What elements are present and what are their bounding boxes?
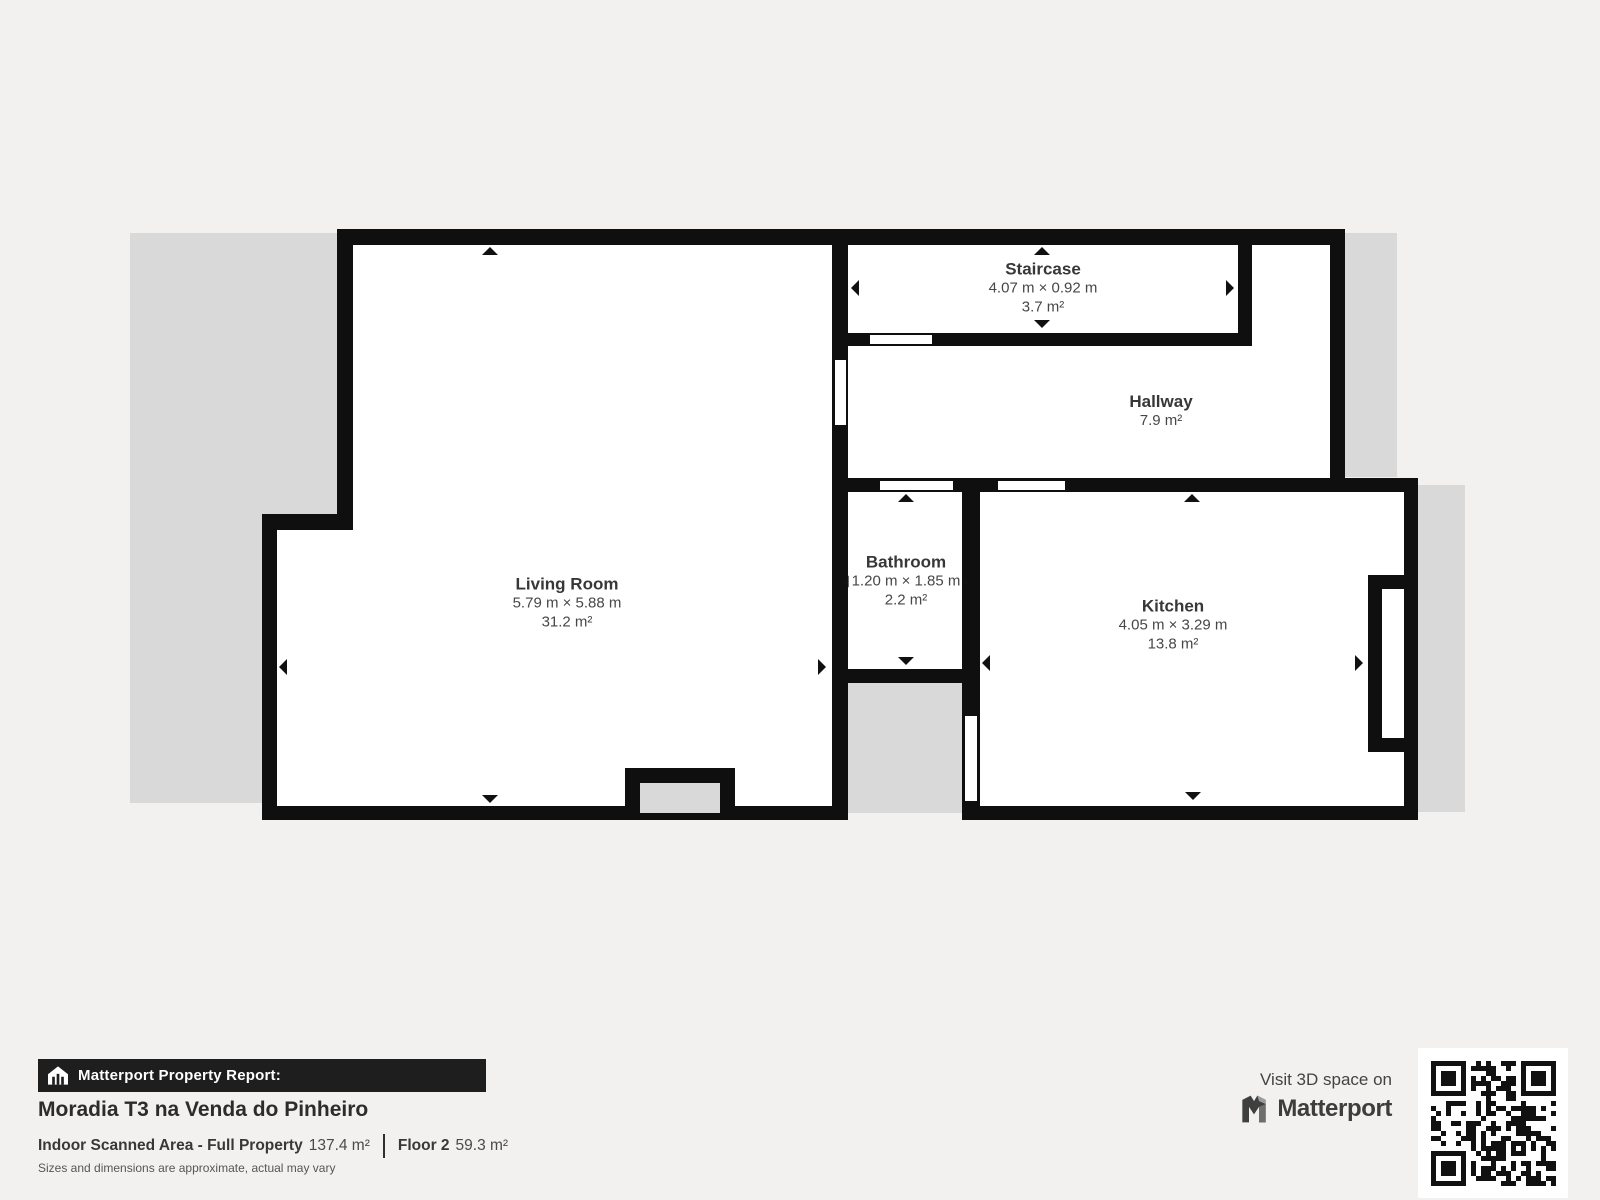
room-fill-living-room — [277, 530, 357, 806]
wall — [262, 806, 848, 820]
room-label-kitchen: Kitchen 4.05 m × 3.29 m 13.8 m² — [1119, 597, 1228, 654]
measure-arrow-left-icon — [279, 659, 287, 675]
matterport-logo: Matterport — [1150, 1094, 1392, 1124]
matterport-m-icon — [1239, 1094, 1269, 1124]
room-area: 31.2 m² — [513, 613, 622, 632]
room-name: Kitchen — [1119, 597, 1228, 616]
measure-arrow-up-icon — [1184, 494, 1200, 502]
floorplan-report-page: Living Room 5.79 m × 5.88 m 31.2 m² Stai… — [0, 0, 1600, 1200]
measure-arrow-right-icon — [1355, 655, 1363, 671]
measure-arrow-down-icon — [898, 657, 914, 665]
door-bathroom — [880, 481, 953, 490]
measure-arrow-left-icon — [851, 280, 859, 296]
wall — [1238, 245, 1252, 346]
room-name: Bathroom — [843, 553, 970, 572]
measure-arrow-down-icon — [1185, 792, 1201, 800]
door-kitchen-side — [965, 716, 977, 801]
scanned-area-label: Indoor Scanned Area - Full Property — [38, 1137, 303, 1155]
wall-niche — [1368, 738, 1404, 752]
measure-arrow-right-icon — [818, 659, 826, 675]
meta-divider — [383, 1134, 385, 1158]
room-name: Hallway — [1129, 392, 1192, 411]
wall — [1330, 229, 1345, 492]
room-name: Staircase — [989, 260, 1098, 279]
wall-niche — [1368, 575, 1382, 752]
room-area: 3.7 m² — [989, 298, 1098, 317]
scan-backdrop — [1345, 233, 1397, 477]
room-name: Living Room — [513, 575, 622, 594]
room-dimensions: 1.20 m × 1.85 m — [843, 572, 970, 591]
measure-arrow-down-icon — [482, 795, 498, 803]
room-fill-hallway — [1252, 245, 1330, 355]
measure-arrow-up-icon — [1034, 247, 1050, 255]
notch-void — [640, 783, 720, 813]
report-header-bar: Matterport Property Report: — [38, 1059, 486, 1092]
matterport-wordmark: Matterport — [1277, 1095, 1392, 1123]
measure-arrow-left-icon — [982, 655, 990, 671]
visit-3d-cta: Visit 3D space on — [1150, 1070, 1392, 1090]
floor-label: Floor 2 — [398, 1137, 450, 1155]
measure-arrow-up-icon — [898, 494, 914, 502]
room-dimensions: 4.05 m × 3.29 m — [1119, 616, 1228, 635]
room-dimensions: 5.79 m × 5.88 m — [513, 594, 622, 613]
wall — [962, 806, 1418, 820]
scan-backdrop — [848, 683, 962, 813]
scan-backdrop — [1418, 485, 1465, 812]
room-dimensions: 4.07 m × 0.92 m — [989, 279, 1098, 298]
wall — [1404, 478, 1418, 820]
floor-value: 59.3 m² — [456, 1137, 509, 1155]
measure-arrow-left-icon — [843, 576, 849, 588]
property-title: Moradia T3 na Venda do Pinheiro — [38, 1098, 368, 1122]
door-kitchen — [998, 481, 1065, 490]
measure-arrow-right-icon — [1226, 280, 1234, 296]
room-area: 2.2 m² — [843, 591, 970, 610]
measure-arrow-up-icon — [482, 247, 498, 255]
wall — [832, 229, 848, 820]
door-living-hallway — [835, 360, 846, 425]
disclaimer-text: Sizes and dimensions are approximate, ac… — [38, 1161, 335, 1175]
wall-niche — [1368, 575, 1404, 589]
room-label-bathroom: Bathroom 1.20 m × 1.85 m 2.2 m² — [843, 553, 970, 610]
house-chart-icon — [48, 1066, 68, 1085]
window-staircase — [870, 335, 932, 344]
room-label-living-room: Living Room 5.79 m × 5.88 m 31.2 m² — [513, 575, 622, 632]
wall — [832, 669, 980, 683]
wall — [262, 514, 277, 820]
qr-code — [1418, 1048, 1568, 1198]
room-area: 13.8 m² — [1119, 635, 1228, 654]
room-fill-hallway — [848, 346, 1330, 478]
measure-arrow-down-icon — [1034, 320, 1050, 328]
wall — [337, 229, 353, 530]
room-area: 7.9 m² — [1129, 411, 1192, 430]
report-bar-label: Matterport Property Report: — [78, 1067, 281, 1084]
room-label-hallway: Hallway 7.9 m² — [1129, 392, 1192, 430]
room-fill-living-room — [353, 245, 832, 806]
property-meta: Indoor Scanned Area - Full Property 137.… — [38, 1134, 508, 1158]
room-label-staircase: Staircase 4.07 m × 0.92 m 3.7 m² — [989, 260, 1098, 317]
measure-arrow-right-icon — [963, 576, 969, 588]
scanned-area-value: 137.4 m² — [309, 1137, 370, 1155]
